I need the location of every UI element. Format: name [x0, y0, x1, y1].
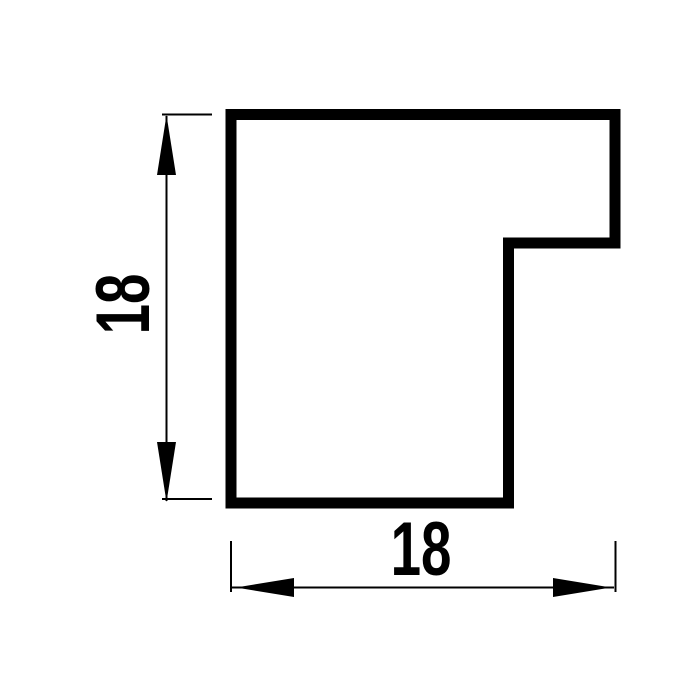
- height-dimension-label: 18: [81, 274, 166, 335]
- arrow-up-icon: [157, 115, 176, 175]
- height-dimension: 18: [81, 115, 212, 503]
- technical-drawing-canvas: 18 18: [0, 0, 700, 700]
- arrow-left-icon: [236, 578, 294, 597]
- profile-drawing: 18 18: [0, 0, 700, 700]
- arrow-down-icon: [157, 442, 176, 502]
- width-dimension: 18: [231, 507, 616, 597]
- profile-outline: [231, 115, 615, 504]
- width-dimension-label: 18: [391, 507, 452, 592]
- arrow-right-icon: [553, 578, 611, 597]
